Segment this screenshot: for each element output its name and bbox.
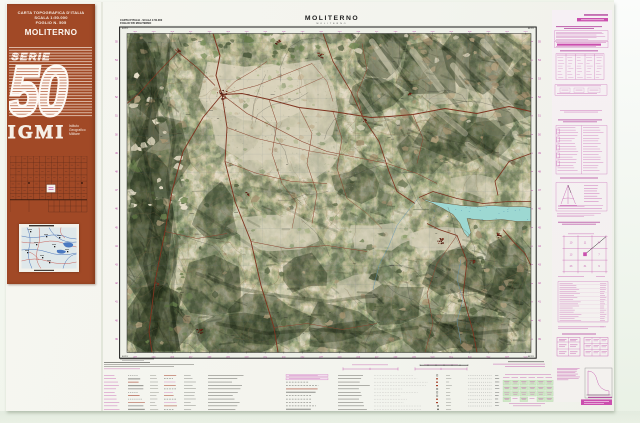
svg-text:50: 50 <box>9 53 67 118</box>
svg-text:40°15': 40°15' <box>528 28 535 30</box>
svg-text:10: 10 <box>570 242 573 245</box>
svg-text:24: 24 <box>598 242 601 245</box>
svg-text:11: 11 <box>584 242 587 245</box>
svg-text:9: 9 <box>598 265 600 268</box>
svg-text:13: 13 <box>570 253 573 256</box>
svg-text:7: 7 <box>598 253 600 256</box>
svg-text:40°15': 40°15' <box>122 28 129 30</box>
svg-text:31: 31 <box>584 265 587 268</box>
svg-text:23: 23 <box>570 265 573 268</box>
